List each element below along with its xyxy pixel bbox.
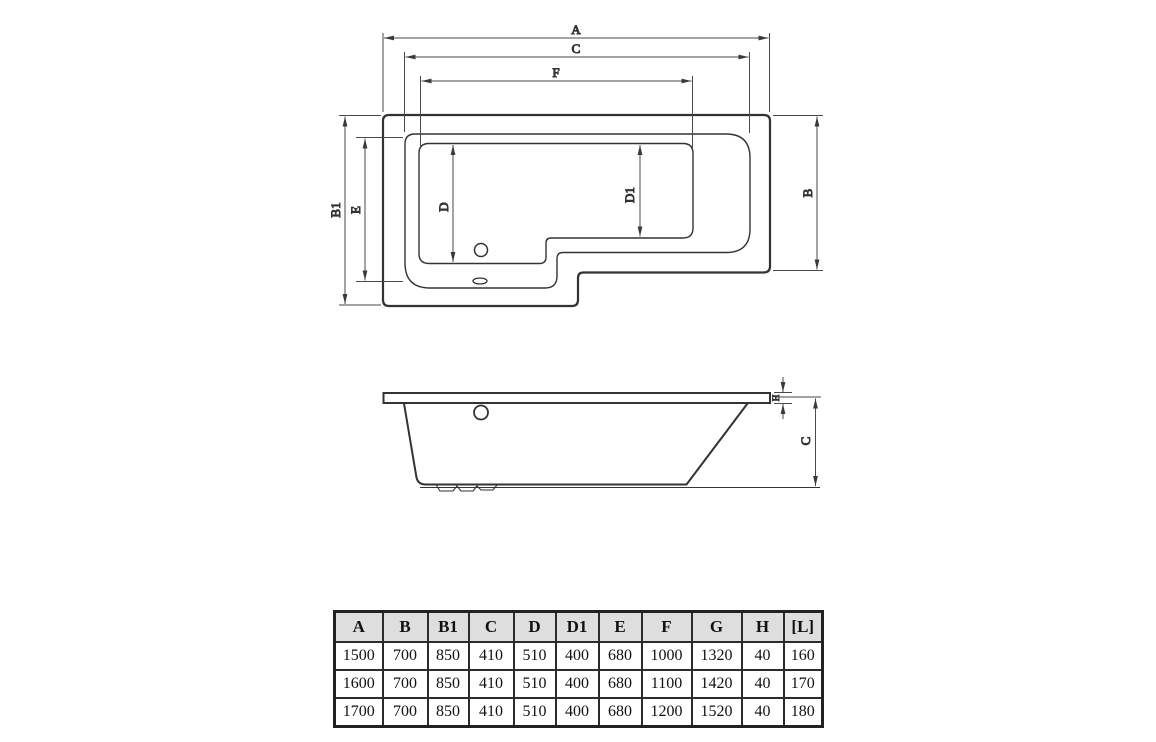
dim-h-label: H <box>771 394 781 401</box>
header-cell-f: F <box>642 612 692 643</box>
table-cell: 850 <box>428 670 469 698</box>
overflow-slot <box>473 278 487 284</box>
plan-view: A C F B1 <box>328 22 823 306</box>
table-cell: 1200 <box>642 698 692 727</box>
dim-c <box>405 52 750 133</box>
table-cell: 1500 <box>335 642 383 670</box>
table-cell: 1420 <box>692 670 742 698</box>
dim-b1-label: B1 <box>328 202 343 217</box>
side-view: H C <box>384 377 822 491</box>
table-cell: 40 <box>742 670 784 698</box>
table-cell: 680 <box>599 642 642 670</box>
table-cell: 180 <box>784 698 823 727</box>
header-cell-c: C <box>469 612 514 643</box>
header-cell-d1: D1 <box>556 612 599 643</box>
plan-rim-outline <box>405 134 750 288</box>
table-cell: 1520 <box>692 698 742 727</box>
side-overflow-circle <box>474 406 488 420</box>
table-cell: 680 <box>599 670 642 698</box>
table-cell: 850 <box>428 698 469 727</box>
table-cell: 40 <box>742 698 784 727</box>
table-cell: 1320 <box>692 642 742 670</box>
dim-e <box>356 138 403 282</box>
table-cell: 1100 <box>642 670 692 698</box>
dim-d-label: D <box>436 202 451 211</box>
table-header-row: A B B1 C D D1 E F G H [L] <box>335 612 823 643</box>
dim-e-label: E <box>348 206 363 214</box>
header-cell-d: D <box>514 612 556 643</box>
table-cell: 700 <box>383 670 428 698</box>
technical-drawing-page: A C F B1 <box>0 0 1156 742</box>
table-cell: 510 <box>514 642 556 670</box>
table-cell: 1700 <box>335 698 383 727</box>
table-cell: 510 <box>514 698 556 727</box>
table-cell: 400 <box>556 670 599 698</box>
table-cell: 680 <box>599 698 642 727</box>
table-row: 1600 700 850 410 510 400 680 1100 1420 4… <box>335 670 823 698</box>
table-cell: 400 <box>556 698 599 727</box>
plan-basin-outline <box>419 144 693 264</box>
dim-c-side-label: C <box>798 437 813 446</box>
header-cell-g: G <box>692 612 742 643</box>
table-cell: 160 <box>784 642 823 670</box>
table-cell: 410 <box>469 642 514 670</box>
table-cell: 170 <box>784 670 823 698</box>
dim-f-label: F <box>552 65 559 80</box>
table-cell: 400 <box>556 642 599 670</box>
table-cell: 510 <box>514 670 556 698</box>
dim-b-label: B <box>800 188 815 197</box>
side-rim <box>384 393 771 403</box>
table-cell: 700 <box>383 642 428 670</box>
dim-d1-label: D1 <box>622 187 637 203</box>
table-cell: 1600 <box>335 670 383 698</box>
table-cell: 410 <box>469 698 514 727</box>
dim-f <box>421 76 693 148</box>
dim-b <box>773 116 823 271</box>
header-cell-h: H <box>742 612 784 643</box>
table-cell: 410 <box>469 670 514 698</box>
side-body-outline <box>404 404 748 485</box>
header-cell-b: B <box>383 612 428 643</box>
table-row: 1700 700 850 410 510 400 680 1200 1520 4… <box>335 698 823 727</box>
table-cell: 850 <box>428 642 469 670</box>
header-cell-a: A <box>335 612 383 643</box>
drain-circle <box>475 244 488 257</box>
dim-a-label: A <box>571 22 581 37</box>
header-cell-l: [L] <box>784 612 823 643</box>
table-cell: 40 <box>742 642 784 670</box>
header-cell-e: E <box>599 612 642 643</box>
table-cell: 700 <box>383 698 428 727</box>
dimensions-table: A B B1 C D D1 E F G H [L] 1500 700 850 4… <box>333 610 824 728</box>
table-cell: 1000 <box>642 642 692 670</box>
dim-c-label: C <box>572 41 581 56</box>
table-row: 1500 700 850 410 510 400 680 1000 1320 4… <box>335 642 823 670</box>
header-cell-b1: B1 <box>428 612 469 643</box>
